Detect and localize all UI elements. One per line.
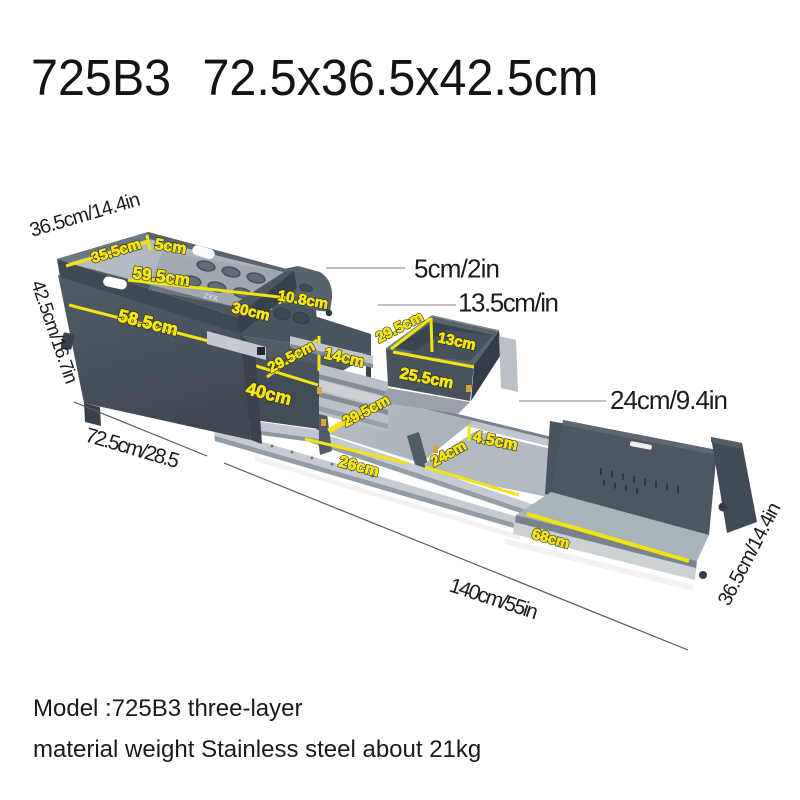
svg-text:5cm/2in: 5cm/2in <box>414 254 500 284</box>
svg-text:36.5cm/14.4in: 36.5cm/14.4in <box>27 189 143 242</box>
svg-text:24cm/9.4in: 24cm/9.4in <box>610 385 728 415</box>
svg-text:140cm/55in: 140cm/55in <box>446 574 541 624</box>
svg-text:13.5cm/in: 13.5cm/in <box>458 288 559 318</box>
svg-text:72.5cm/28.5: 72.5cm/28.5 <box>83 424 183 473</box>
